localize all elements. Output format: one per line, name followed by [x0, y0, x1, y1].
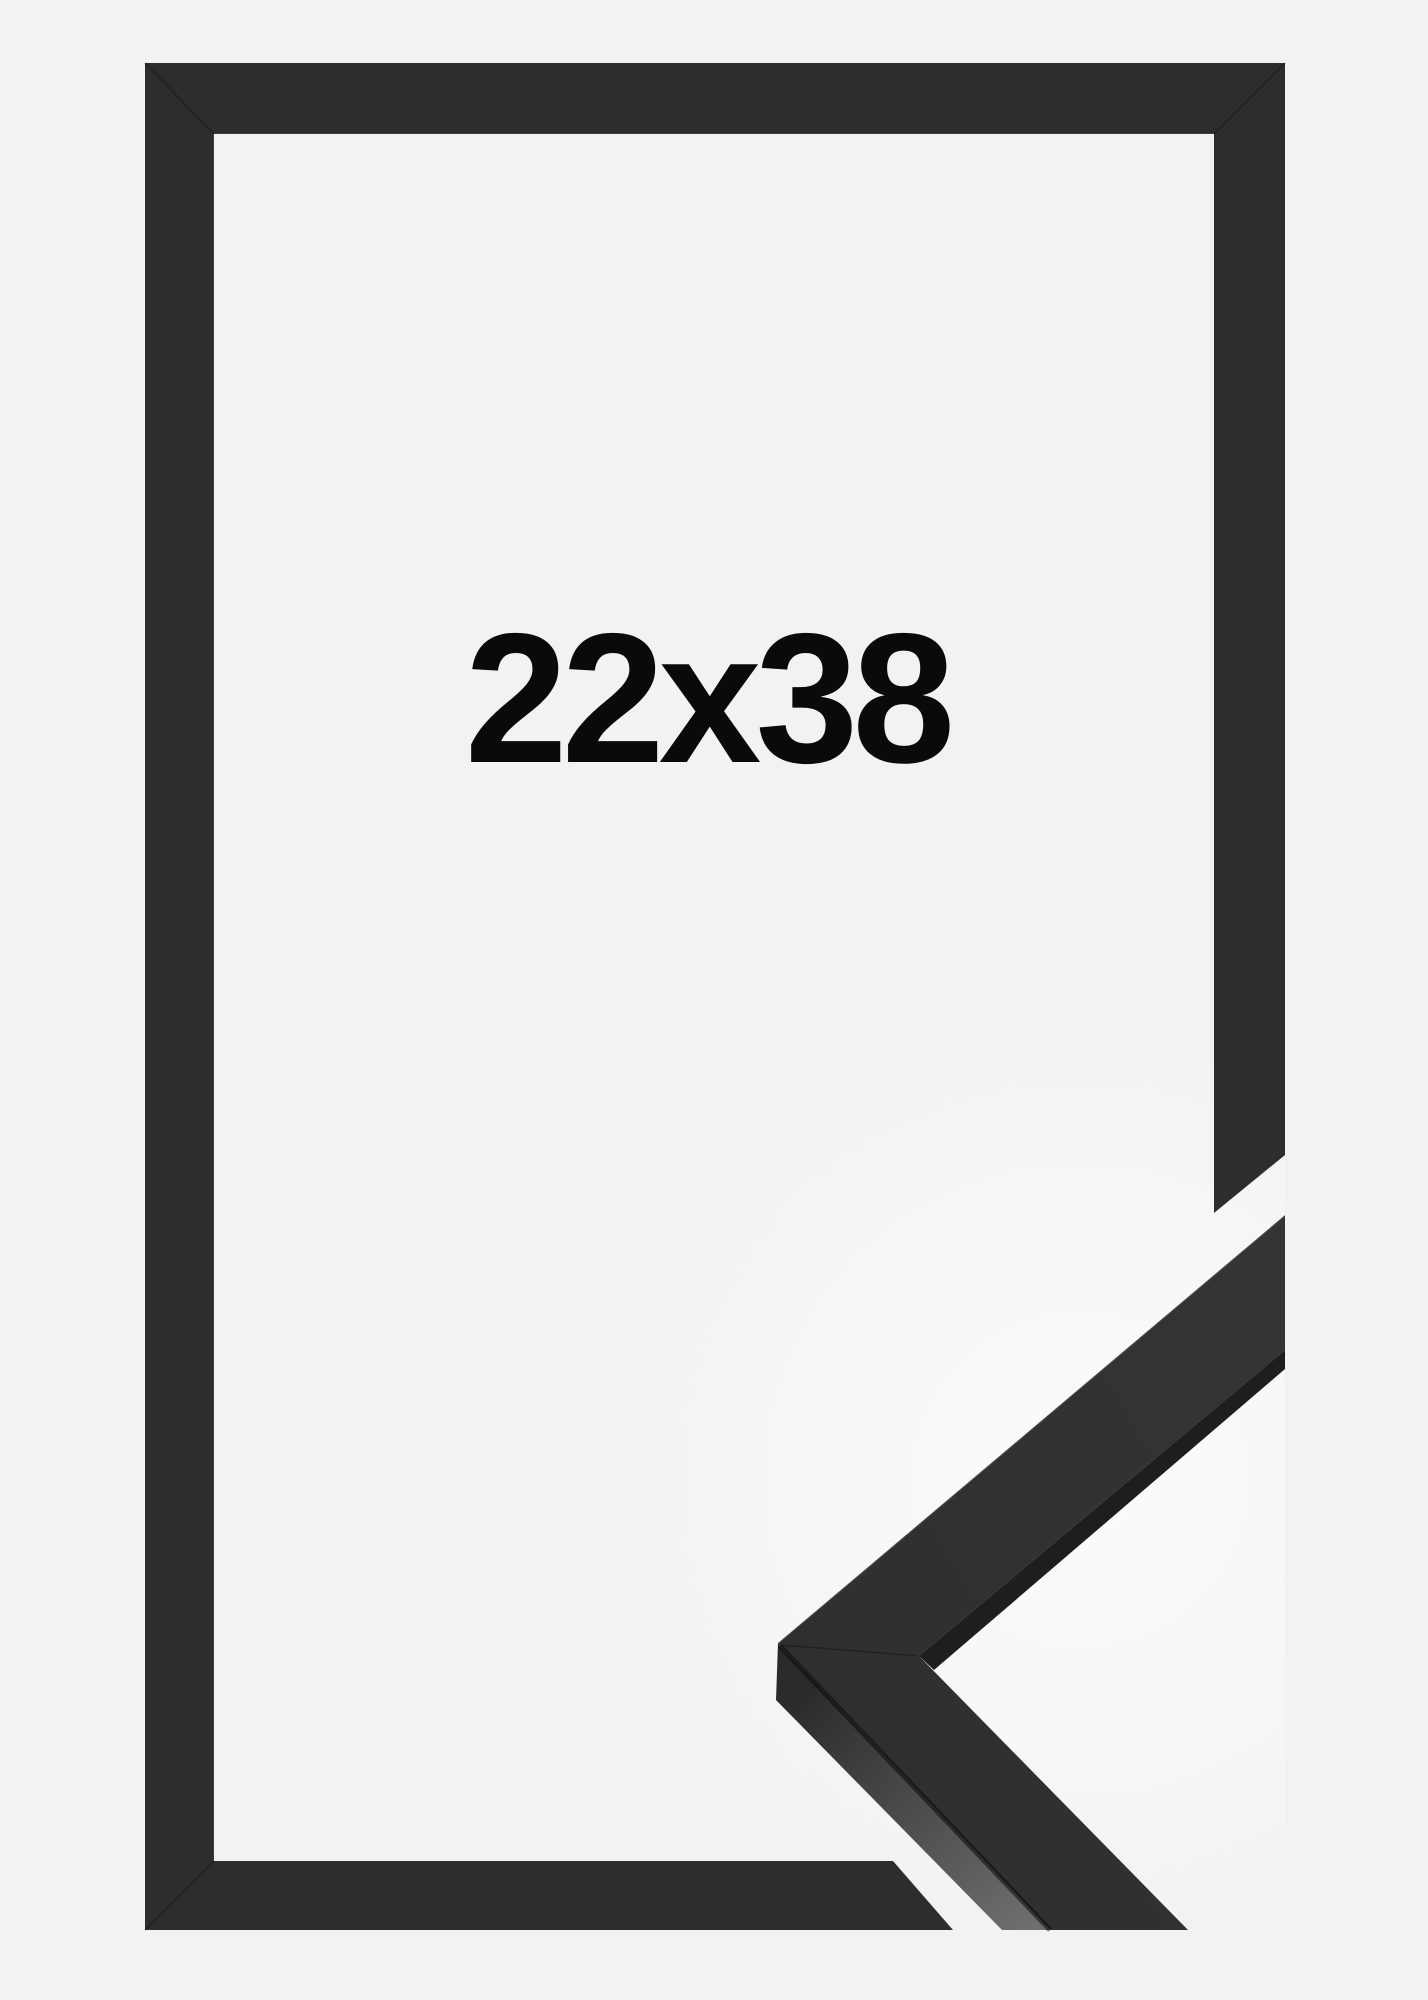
size-label: 22x38	[465, 596, 951, 802]
product-photo: 22x38	[0, 0, 1428, 2000]
